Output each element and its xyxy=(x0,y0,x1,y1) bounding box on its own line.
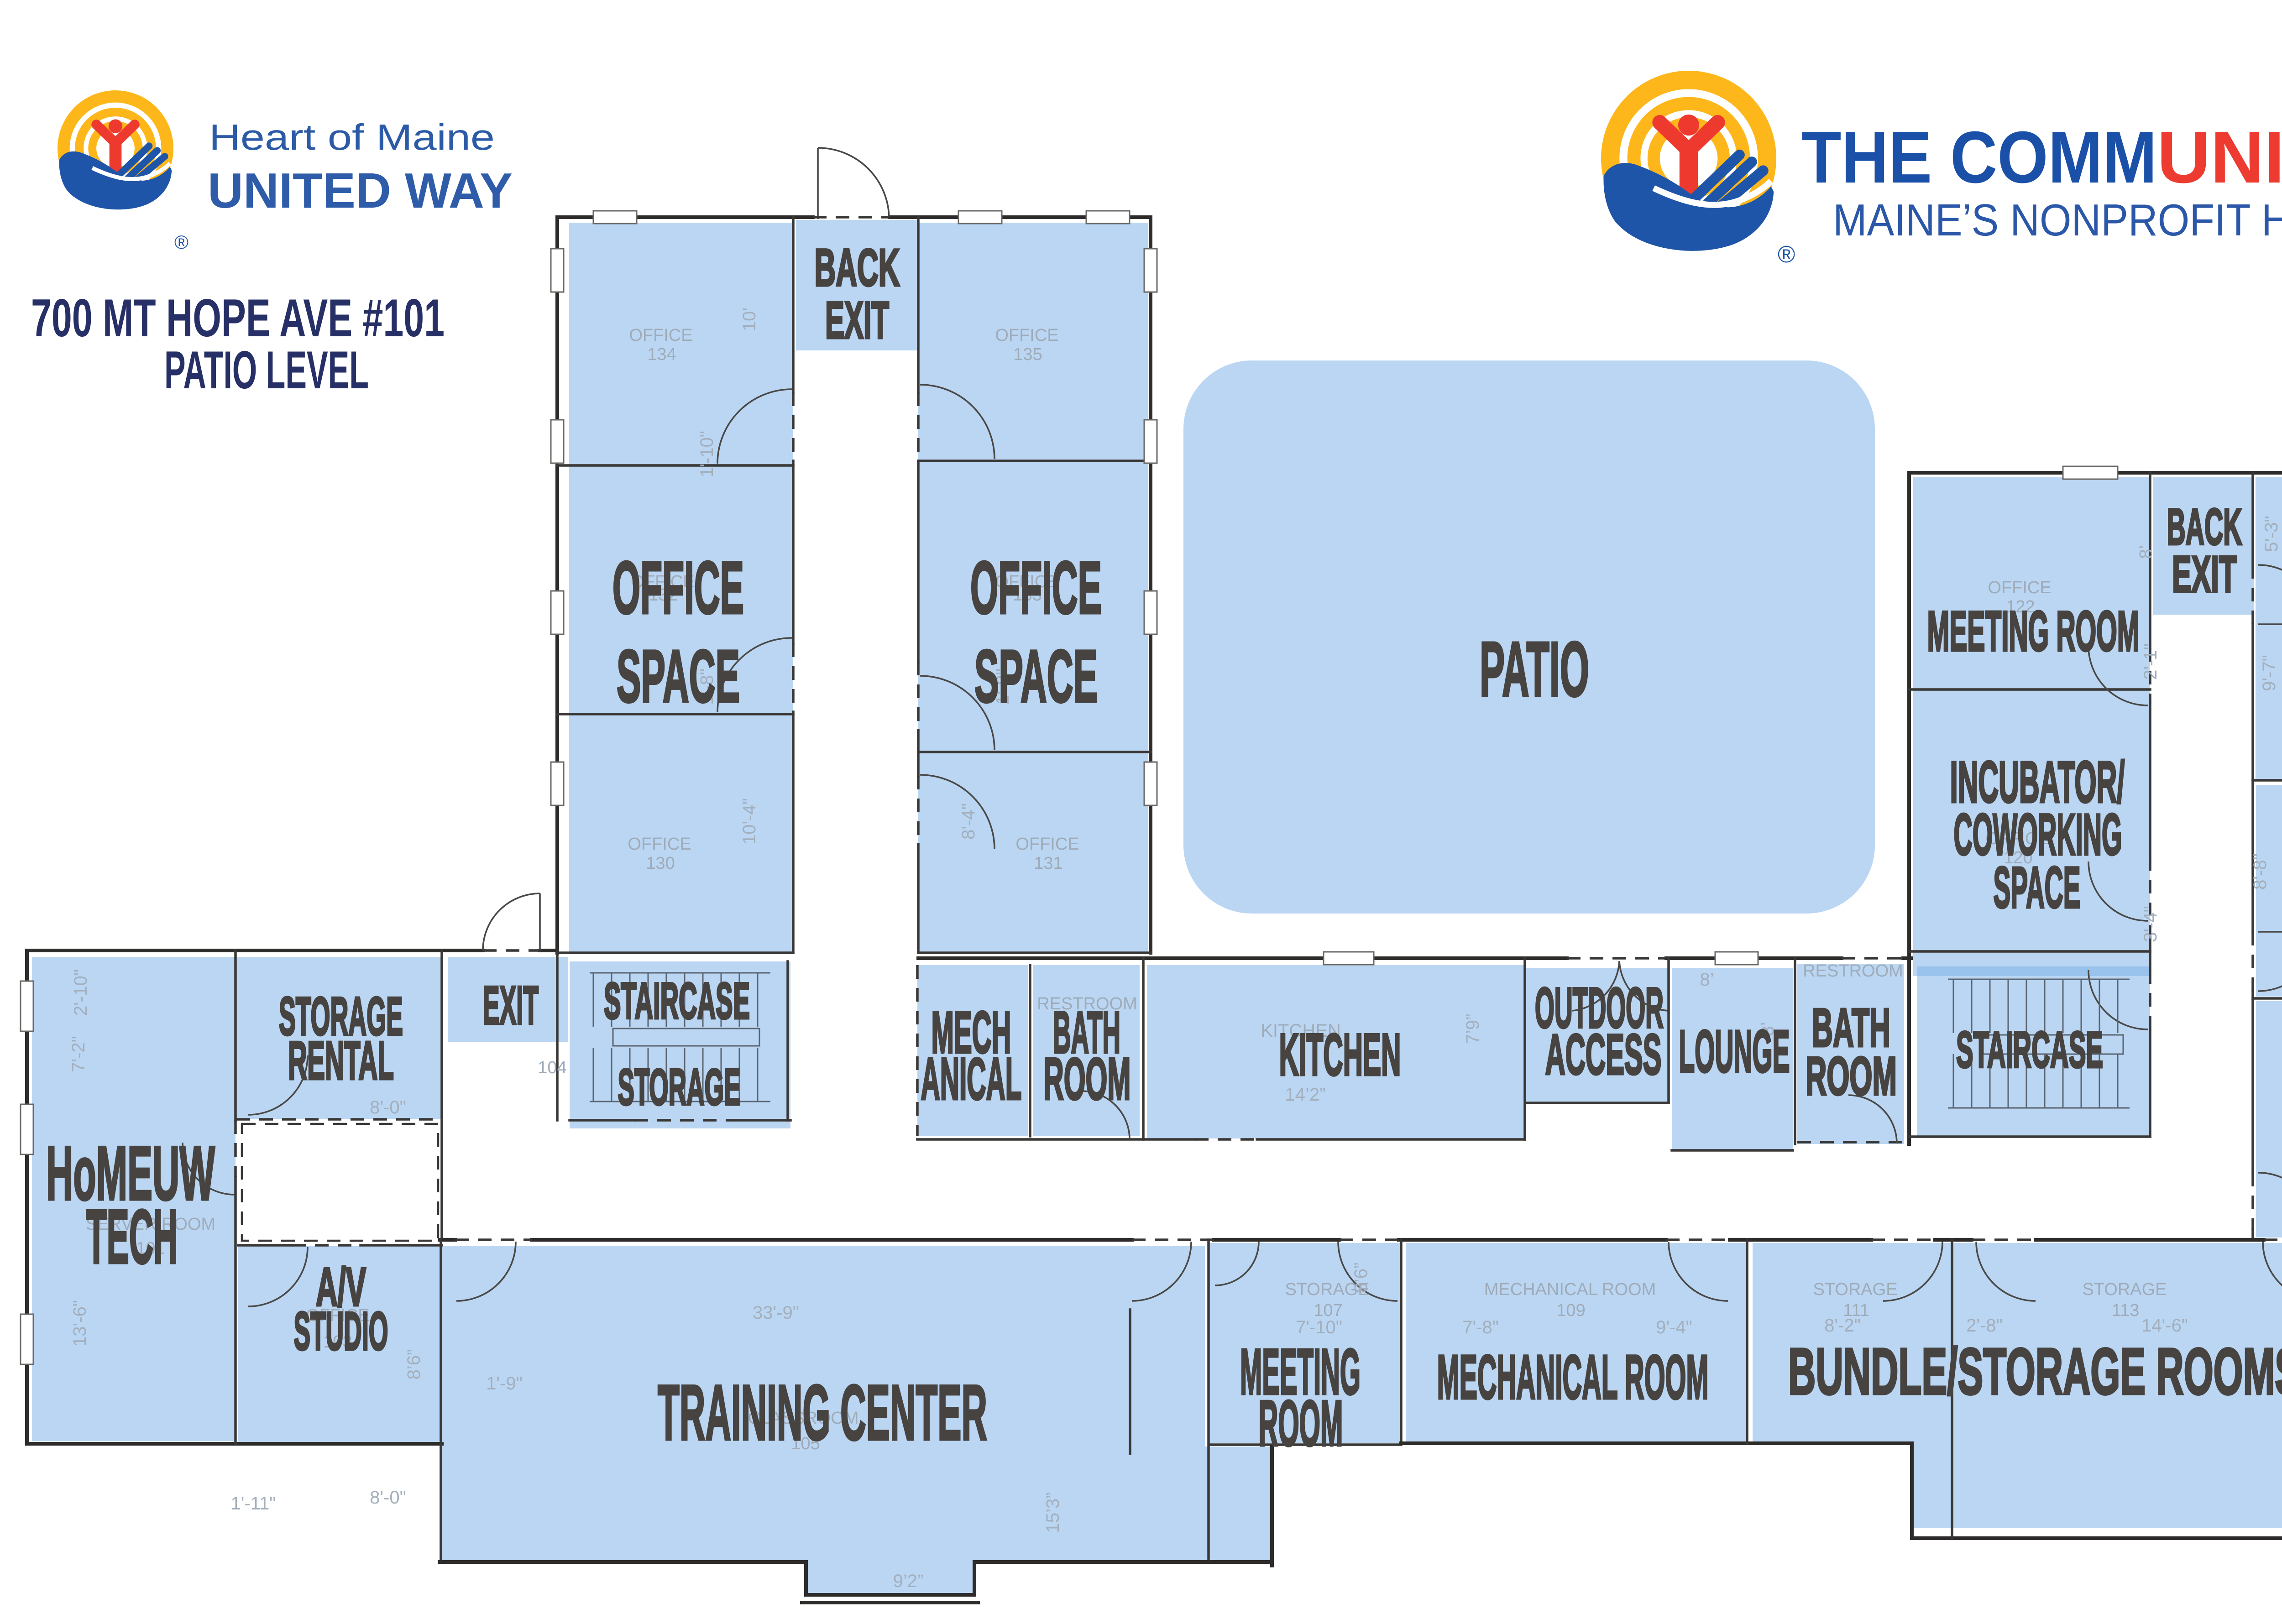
svg-text:BUNDLE/STORAGE ROOMS: BUNDLE/STORAGE ROOMS xyxy=(1788,1335,2282,1408)
svg-text:130: 130 xyxy=(646,854,675,873)
svg-text:9'-4": 9'-4" xyxy=(1656,1317,1692,1337)
svg-text:7'-10": 7'-10" xyxy=(1296,1317,1342,1337)
svg-text:RESTROOM: RESTROOM xyxy=(1803,961,1903,981)
svg-text:MEETING ROOM: MEETING ROOM xyxy=(1927,600,2140,663)
svg-text:700 MT HOPE AVE #101: 700 MT HOPE AVE #101 xyxy=(31,288,445,348)
svg-text:PATIO: PATIO xyxy=(1480,626,1589,713)
svg-text:10'-4": 10'-4" xyxy=(739,798,759,845)
svg-text:STORAGE: STORAGE xyxy=(1813,1280,1897,1299)
svg-text:STORAGE: STORAGE xyxy=(618,1059,741,1116)
svg-text:OFFICE: OFFICE xyxy=(1988,578,2051,597)
svg-text:RENTAL: RENTAL xyxy=(288,1030,394,1091)
svg-text:5'-3": 5'-3" xyxy=(2261,516,2282,552)
svg-text:OFFICE: OFFICE xyxy=(612,546,744,629)
svg-text:14'-6": 14'-6" xyxy=(2141,1316,2188,1336)
svg-text:7’9”: 7’9” xyxy=(1463,1014,1483,1044)
svg-text:EXIT: EXIT xyxy=(483,975,539,1036)
svg-text:OFFICE: OFFICE xyxy=(628,835,691,854)
svg-text:TECH: TECH xyxy=(86,1194,178,1279)
svg-text:8'-2": 8'-2" xyxy=(1824,1316,1861,1336)
svg-text:ROOM: ROOM xyxy=(1806,1046,1897,1107)
svg-text:SPACE: SPACE xyxy=(1994,855,2081,920)
svg-text:LOUNGE: LOUNGE xyxy=(1679,1018,1790,1085)
svg-text:MAINE’S NONPROFIT HUB: MAINE’S NONPROFIT HUB xyxy=(1833,195,2282,245)
svg-text:BACK: BACK xyxy=(815,239,900,297)
svg-text:UNITED WAY: UNITED WAY xyxy=(208,163,513,219)
svg-text:OFFICE: OFFICE xyxy=(995,326,1058,345)
svg-text:TRAINING CENTER: TRAINING CENTER xyxy=(658,1369,987,1457)
svg-text:134: 134 xyxy=(647,345,676,364)
svg-text:1'-10": 1'-10" xyxy=(697,431,717,477)
svg-text:MECHANICAL ROOM: MECHANICAL ROOM xyxy=(1437,1342,1709,1412)
svg-text:EXIT: EXIT xyxy=(2172,546,2237,603)
svg-text:2'-10": 2'-10" xyxy=(71,969,91,1016)
svg-text:131: 131 xyxy=(1034,854,1062,873)
svg-text:OFFICE: OFFICE xyxy=(970,546,1102,629)
svg-text:STORAGE: STORAGE xyxy=(2082,1280,2167,1299)
svg-text:ANICAL: ANICAL xyxy=(921,1045,1022,1112)
svg-text:9'-7": 9'-7" xyxy=(2259,655,2279,691)
svg-text:104: 104 xyxy=(538,1058,566,1077)
svg-text:EXIT: EXIT xyxy=(825,291,889,350)
svg-text:ACCESS: ACCESS xyxy=(1545,1023,1662,1086)
svg-text:7'-8": 7'-8" xyxy=(1462,1317,1499,1337)
svg-text:ROOM: ROOM xyxy=(1259,1387,1343,1460)
svg-text:13'-6": 13'-6" xyxy=(70,1300,90,1347)
svg-text:STAIRCASE: STAIRCASE xyxy=(604,972,750,1029)
svg-text:STUDIO: STUDIO xyxy=(294,1301,388,1362)
svg-text:8’: 8’ xyxy=(1700,970,1714,990)
svg-text:OFFICE: OFFICE xyxy=(1015,835,1079,854)
svg-text:8’6”: 8’6” xyxy=(404,1349,424,1380)
svg-text:8’6”: 8’6” xyxy=(1351,1263,1371,1293)
svg-text:33'-9": 33'-9" xyxy=(753,1303,799,1323)
svg-text:2'-1": 2'-1" xyxy=(2141,643,2161,680)
svg-text:7'-2": 7'-2" xyxy=(68,1036,89,1072)
svg-text:KITCHEN: KITCHEN xyxy=(1279,1021,1401,1088)
svg-text:1'-11": 1'-11" xyxy=(231,1493,276,1514)
svg-text:ROOM: ROOM xyxy=(1044,1045,1131,1112)
svg-text:PATIO LEVEL: PATIO LEVEL xyxy=(164,340,369,400)
svg-text:Heart of Maine: Heart of Maine xyxy=(209,117,495,157)
svg-text:THE COMM: THE COMM xyxy=(1801,116,2157,198)
svg-text:SPACE: SPACE xyxy=(617,634,740,718)
svg-text:MECHANICAL ROOM: MECHANICAL ROOM xyxy=(1484,1280,1656,1299)
svg-text:SPACE: SPACE xyxy=(974,634,1098,718)
svg-text:109: 109 xyxy=(1556,1301,1585,1320)
svg-text:OFFICE: OFFICE xyxy=(629,326,692,345)
svg-text:10': 10' xyxy=(739,308,759,331)
svg-text:®: ® xyxy=(174,231,188,253)
svg-text:UNITY: UNITY xyxy=(2157,116,2282,198)
svg-text:STAIRCASE: STAIRCASE xyxy=(1956,1021,2103,1078)
svg-text:8'-0": 8'-0" xyxy=(370,1488,406,1508)
svg-text:8'-0": 8'-0" xyxy=(370,1097,406,1117)
svg-text:®: ® xyxy=(1778,241,1795,268)
svg-text:3'-4": 3'-4" xyxy=(2141,906,2161,942)
svg-text:113: 113 xyxy=(2112,1301,2140,1320)
svg-text:8'-4": 8'-4" xyxy=(958,803,979,840)
svg-text:15’3”: 15’3” xyxy=(1043,1493,1063,1533)
svg-text:135: 135 xyxy=(1013,345,1042,364)
svg-text:2'-8": 2'-8" xyxy=(1966,1316,2003,1336)
svg-text:9’2”: 9’2” xyxy=(893,1571,924,1591)
svg-text:1'-9": 1'-9" xyxy=(486,1373,523,1394)
svg-text:8': 8' xyxy=(2136,545,2156,559)
svg-text:8'-8": 8'-8" xyxy=(2250,853,2270,890)
